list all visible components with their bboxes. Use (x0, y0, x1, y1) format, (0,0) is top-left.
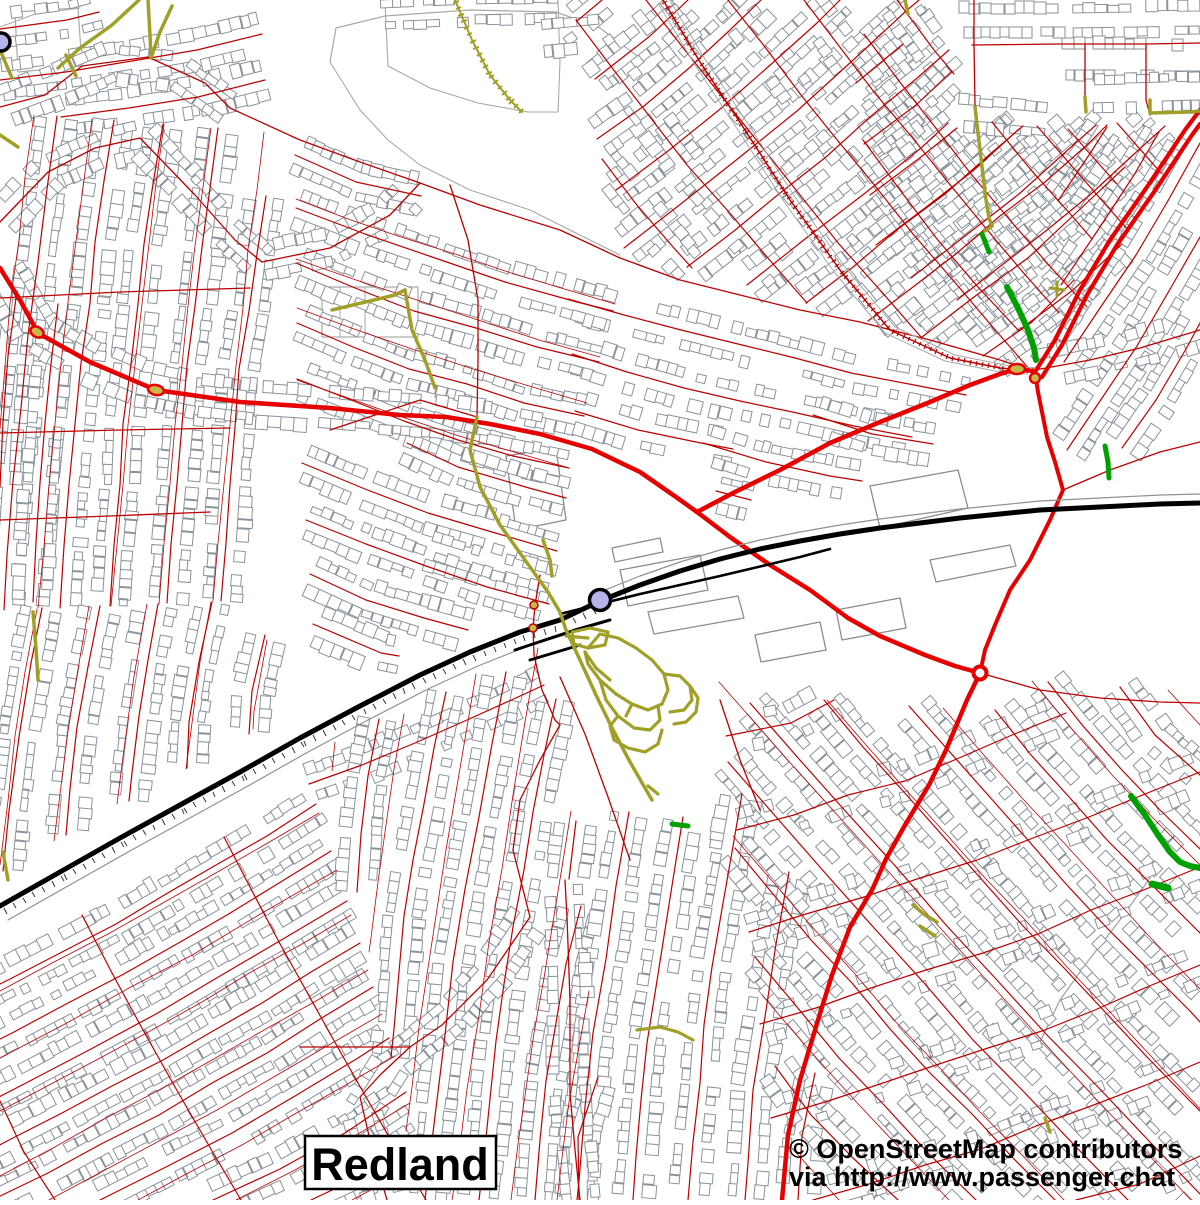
svg-text:© OpenStreetMap contributors: © OpenStreetMap contributors (789, 1134, 1182, 1164)
svg-text:via http://www.passenger.chat: via http://www.passenger.chat (789, 1162, 1175, 1192)
svg-text:Redland: Redland (311, 1139, 489, 1190)
